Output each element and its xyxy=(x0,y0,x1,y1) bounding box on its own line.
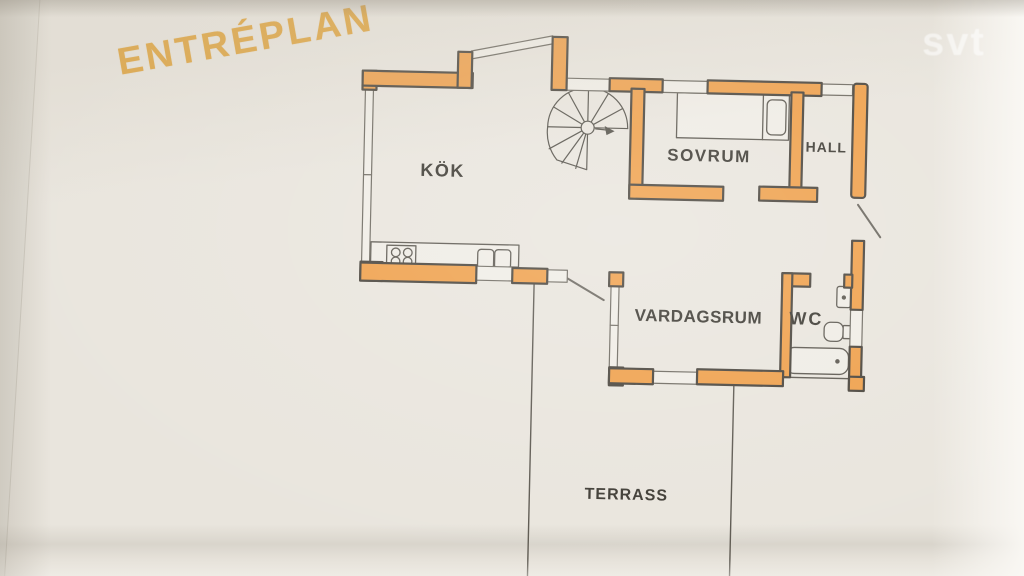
washbasin-icon xyxy=(837,286,851,307)
room-label-livingroom: VARDAGSRUM xyxy=(634,306,762,328)
spiral-staircase-icon xyxy=(546,87,628,171)
angled-roof-window xyxy=(471,34,553,61)
terrace-boundary-lines xyxy=(527,284,736,576)
room-label-bedroom: SOVRUM xyxy=(667,145,751,166)
terrace-door-swing xyxy=(567,278,604,300)
kitchen-west-window xyxy=(362,90,374,263)
bed-icon xyxy=(676,93,789,141)
room-label-kitchen: KÖK xyxy=(420,160,465,181)
room-label-terrace: TERRASS xyxy=(584,486,668,505)
stair-direction-arrow xyxy=(604,126,614,135)
toilet-icon xyxy=(824,322,851,342)
floor-plan-drawing: KÖK SOVRUM HALL VARDAGSRUM WC TERRASS xyxy=(0,0,1024,576)
room-label-wc: WC xyxy=(789,308,823,329)
scanned-floor-plan-photo: KÖK SOVRUM HALL VARDAGSRUM WC TERRASS EN… xyxy=(0,0,1024,576)
livingroom-west-window xyxy=(609,286,619,367)
entrance-door-swing xyxy=(857,205,881,238)
bathtub-icon xyxy=(785,347,849,374)
broadcaster-watermark: svt xyxy=(922,20,986,65)
wc-south-edge xyxy=(783,377,849,378)
room-label-hall: HALL xyxy=(805,139,847,156)
